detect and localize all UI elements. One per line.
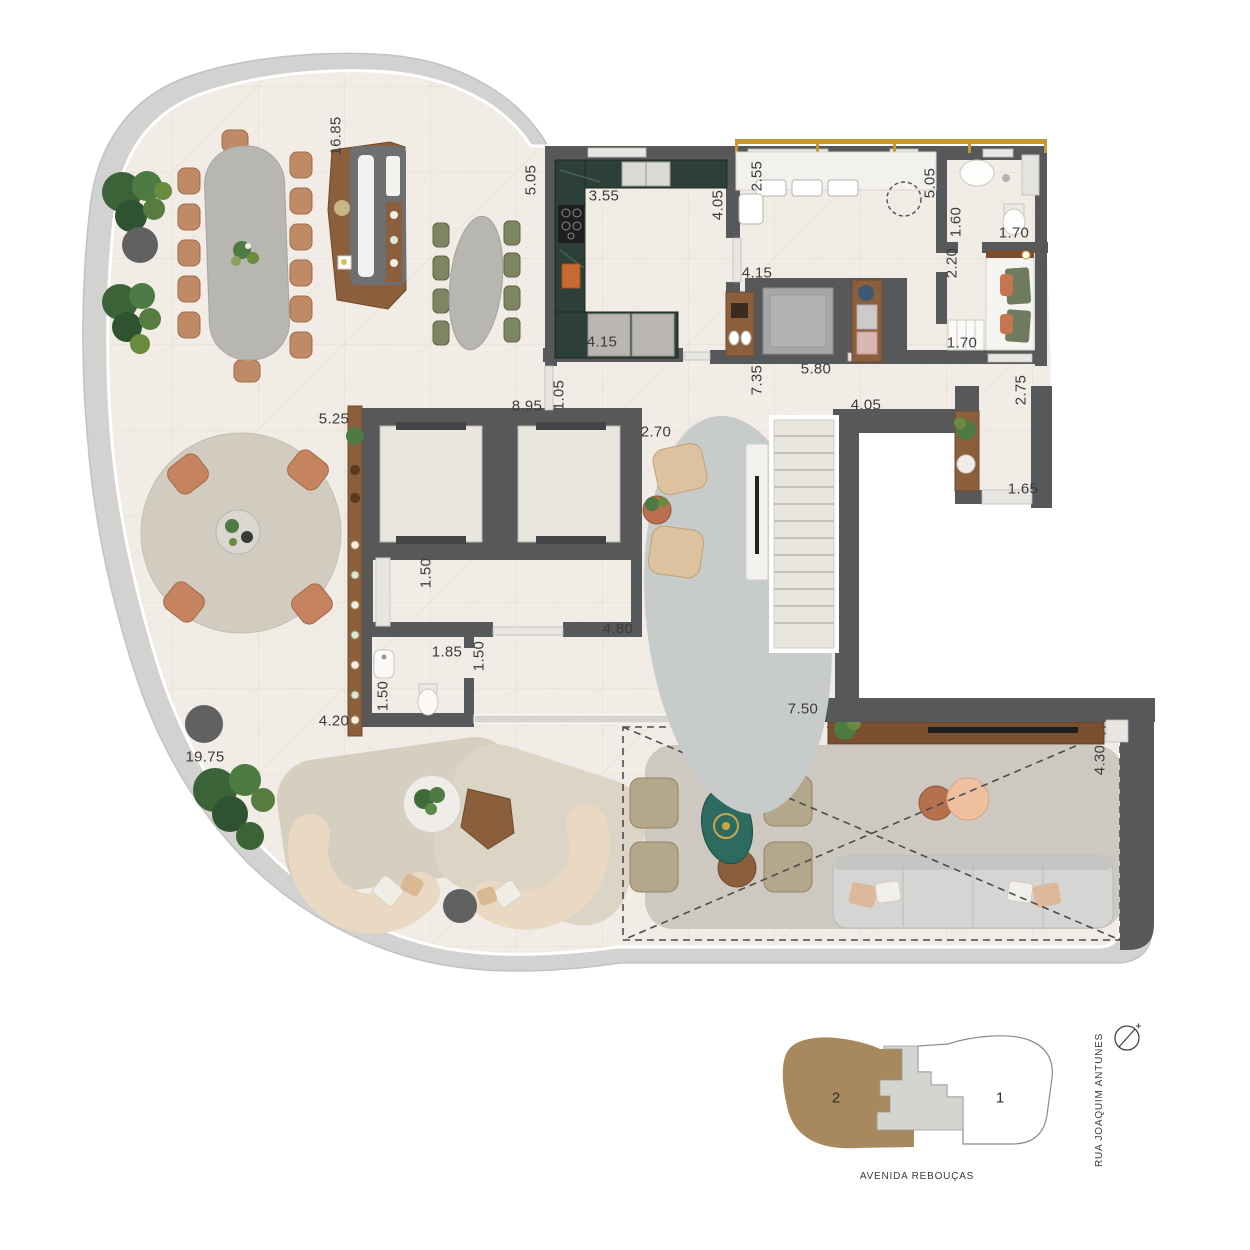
floor-plan-page: 16.85 5.05 3.55 4.05 2.55 5.05 1.60 1.70… [0, 0, 1250, 1250]
dim-4-20: 4.20 [319, 714, 349, 729]
bathroom-sink [960, 160, 994, 186]
dim-4-05-b: 4.05 [851, 398, 881, 413]
oven [632, 314, 674, 356]
staircase [769, 415, 839, 653]
dim-1-05: 1.05 [552, 380, 567, 410]
dim-7-50: 7.50 [788, 702, 818, 717]
dim-4-05-a: 4.05 [711, 190, 726, 220]
dim-2-75: 2.75 [1014, 375, 1029, 405]
void-over-living [956, 504, 1126, 700]
elevator-1 [380, 426, 482, 542]
dim-1-85: 1.85 [432, 645, 462, 660]
round-planter [185, 705, 223, 743]
keyplan-unit-2-label: 2 [832, 1091, 840, 1106]
service-cabinet [726, 292, 754, 356]
dim-5-05-b: 5.05 [923, 168, 938, 198]
hall-closet [376, 558, 390, 626]
service-desk [852, 280, 882, 362]
dim-1-70-a: 1.70 [999, 226, 1029, 241]
dim-4-80: 4.80 [603, 622, 633, 637]
dim-3-55: 3.55 [589, 189, 619, 204]
dim-2-70: 2.70 [641, 425, 671, 440]
north-arrow-icon [1115, 1024, 1141, 1051]
dim-4-15-a: 4.15 [587, 335, 617, 350]
dim-1-50-b: 1.50 [472, 641, 487, 671]
dim-5-05-a: 5.05 [524, 165, 539, 195]
key-plan [783, 1024, 1141, 1149]
dim-1-50-c: 1.50 [376, 681, 391, 711]
wine-rack [346, 406, 364, 736]
tv [928, 727, 1078, 733]
round-planter [122, 227, 158, 263]
dim-1-65: 1.65 [1008, 482, 1038, 497]
bar-counter [328, 142, 406, 309]
dim-1-60: 1.60 [949, 207, 964, 237]
street-label-bottom: AVENIDA REBOUÇAS [860, 1172, 974, 1182]
service-elevator [726, 280, 882, 362]
keyplan-unit-1-label: 1 [996, 1091, 1004, 1106]
terrace-round-lounge [141, 433, 341, 633]
dim-2-55: 2.55 [750, 161, 765, 191]
dim-7-35: 7.35 [750, 365, 765, 395]
cutting-board [562, 264, 580, 288]
dim-4-15-b: 4.15 [742, 266, 772, 281]
lavabo-toilet [418, 689, 438, 715]
round-planter [443, 889, 477, 923]
dim-8-95: 8.95 [512, 399, 542, 414]
dim-16-85: 16.85 [329, 116, 344, 155]
dim-1-70-b: 1.70 [947, 336, 977, 351]
dim-1-50-a: 1.50 [419, 558, 434, 588]
dim-5-80: 5.80 [801, 362, 831, 377]
dim-4-30: 4.30 [1093, 745, 1108, 775]
dim-19-75: 19.75 [185, 750, 224, 765]
lavabo-sink [374, 650, 394, 678]
elevator-2 [518, 426, 620, 542]
shower [1022, 155, 1039, 195]
void-over-living [859, 433, 958, 703]
side-table [216, 510, 260, 554]
dim-5-25: 5.25 [319, 412, 349, 427]
hall-sideboard [954, 411, 979, 491]
dim-2-20: 2.20 [945, 248, 960, 278]
street-label-right: RUA JOAQUIM ANTUNES [1095, 1033, 1105, 1167]
